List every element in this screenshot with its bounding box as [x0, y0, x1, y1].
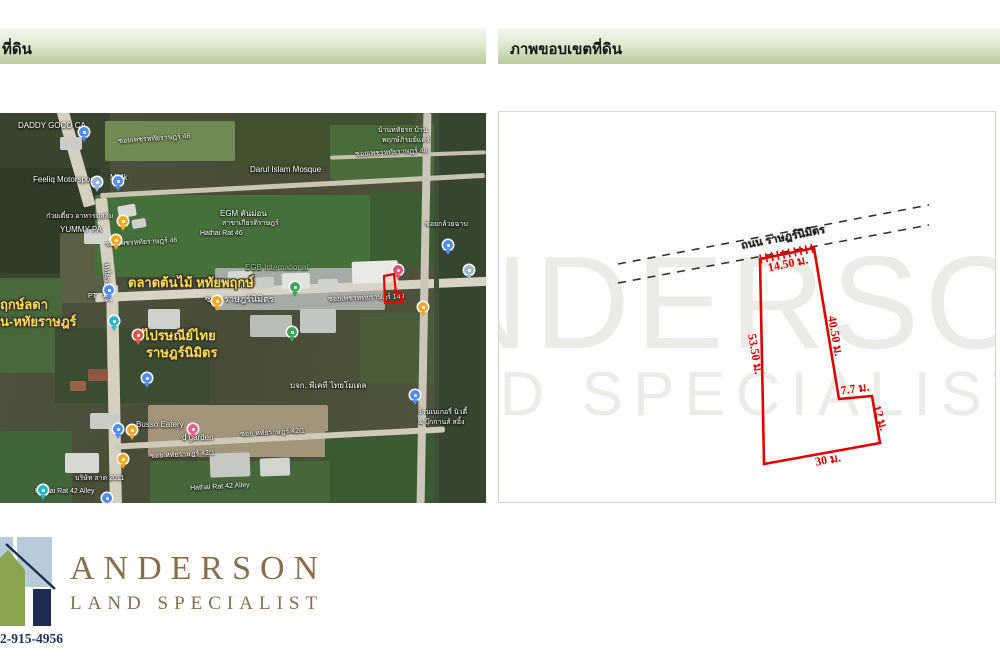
map-label: Busso Eatery — [136, 420, 184, 429]
header-bar-land-map: ที่ดิน — [0, 28, 486, 64]
map-pin-icon — [79, 127, 89, 137]
map-pin-icon — [418, 302, 428, 312]
map-pin-icon — [393, 265, 403, 275]
terrain-patch — [360, 313, 440, 383]
map-building — [88, 369, 108, 381]
brand-name: ANDERSON — [70, 550, 327, 588]
map-building — [60, 137, 82, 150]
map-building — [210, 452, 251, 477]
map-building — [250, 315, 292, 337]
map-building — [352, 260, 399, 284]
map-label: บจก. พีเคที ไทยโมเดล — [290, 381, 366, 390]
header-label-land-map: ที่ดิน — [2, 37, 32, 61]
map-pin-icon — [113, 424, 123, 434]
map-pin-icon — [102, 493, 112, 503]
map-pin-icon — [133, 330, 143, 340]
map-label: EGM คันม่อน — [220, 209, 267, 218]
map-label: & บุ๊กกานส์ สอิ้ง — [418, 419, 464, 427]
map-pin-icon — [188, 424, 198, 434]
brand-tagline: LAND SPECIALIST — [70, 593, 323, 615]
map-pin-icon — [38, 485, 48, 495]
map-label: Feeliq Motorsport — [33, 175, 95, 184]
map-road — [434, 113, 439, 503]
map-label: PT — [88, 293, 97, 301]
map-building — [65, 453, 99, 473]
plot-boundary-polygon — [760, 248, 880, 464]
map-label: ซอยเพชรหทัยราษฎร์ 149 — [328, 293, 405, 304]
map-pin-icon — [290, 282, 300, 292]
map-pin-icon — [92, 177, 102, 187]
boundary-diagram-image[interactable]: ANDERSON LAND SPECIALIST ถนน ราษฎร์นิมิต… — [498, 111, 996, 503]
map-pin-icon — [142, 373, 152, 383]
map-label: YUMMY PA — [60, 225, 102, 234]
map-label: บ้านหทัยรถ บ้าน — [378, 127, 428, 135]
header-label-boundary: ภาพขอบเขตที่ดิน — [510, 37, 622, 61]
map-pin-icon — [287, 327, 297, 337]
map-label: d garden — [182, 433, 214, 442]
plot-outline-svg — [499, 112, 996, 503]
map-building — [70, 381, 86, 391]
map-label: ราษฎร์นิมิตร — [146, 346, 217, 361]
terrain-patch — [438, 113, 486, 503]
map-pin-icon — [464, 265, 474, 275]
map-label: ร้านเบเกอรี่ นิวตี้ — [418, 409, 467, 417]
map-label: ซอยกล้วยฉาบ — [425, 221, 468, 229]
map-label: Hathai Rat 46 — [200, 230, 243, 238]
map-pin-icon — [109, 316, 119, 326]
map-building — [260, 457, 291, 476]
map-label: พฤกษ์ภิรมย์แคร์ — [382, 137, 430, 145]
map-label: DADDY GOOD CA — [18, 121, 86, 130]
map-label: ฤกษ์ลดา — [0, 298, 48, 313]
map-building — [148, 309, 180, 329]
map-pin-icon — [104, 285, 114, 295]
map-label: ก๋วยเตี๋ยว อาหารมุสลิม — [46, 213, 113, 221]
anderson-logo-mark — [0, 536, 56, 630]
map-pin-icon — [410, 390, 420, 400]
map-label: บริษัท ลาด 2011 — [75, 475, 124, 483]
page: ที่ดิน ภาพขอบเขตที่ดิน DADDY GOOD CAบ้าน… — [0, 0, 1000, 656]
map-pin-icon — [212, 296, 222, 306]
phone-number: 2-915-4956 — [0, 631, 63, 647]
map-label: ตลาดต้นไม้ หทัยพฤกษ์ — [128, 276, 254, 291]
map-image[interactable]: DADDY GOOD CAบ้านหทัยรถ บ้านพฤกษ์ภิรมย์แ… — [0, 113, 486, 503]
map-pin-icon — [113, 176, 123, 186]
map-pin-icon — [118, 454, 128, 464]
map-building — [256, 277, 274, 289]
map-pin-icon — [443, 240, 453, 250]
map-pin-icon — [127, 425, 137, 435]
map-building — [318, 279, 338, 292]
header-bar-boundary: ภาพขอบเขตที่ดิน — [498, 28, 1000, 64]
map-pin-icon — [118, 216, 128, 226]
map-label: สาขาเกียรติราษฎร์ — [222, 220, 279, 228]
map-pin-icon — [111, 235, 121, 245]
map-label: น-หทัยราษฎร์ — [0, 315, 77, 330]
dimension-label: 7.7 ม. — [839, 378, 870, 401]
map-label: EGB International — [245, 263, 308, 272]
map-label: Darul Islam Mosque — [250, 165, 321, 174]
map-building — [300, 309, 336, 333]
map-label: ไปรษณีย์ไทย — [143, 329, 216, 344]
